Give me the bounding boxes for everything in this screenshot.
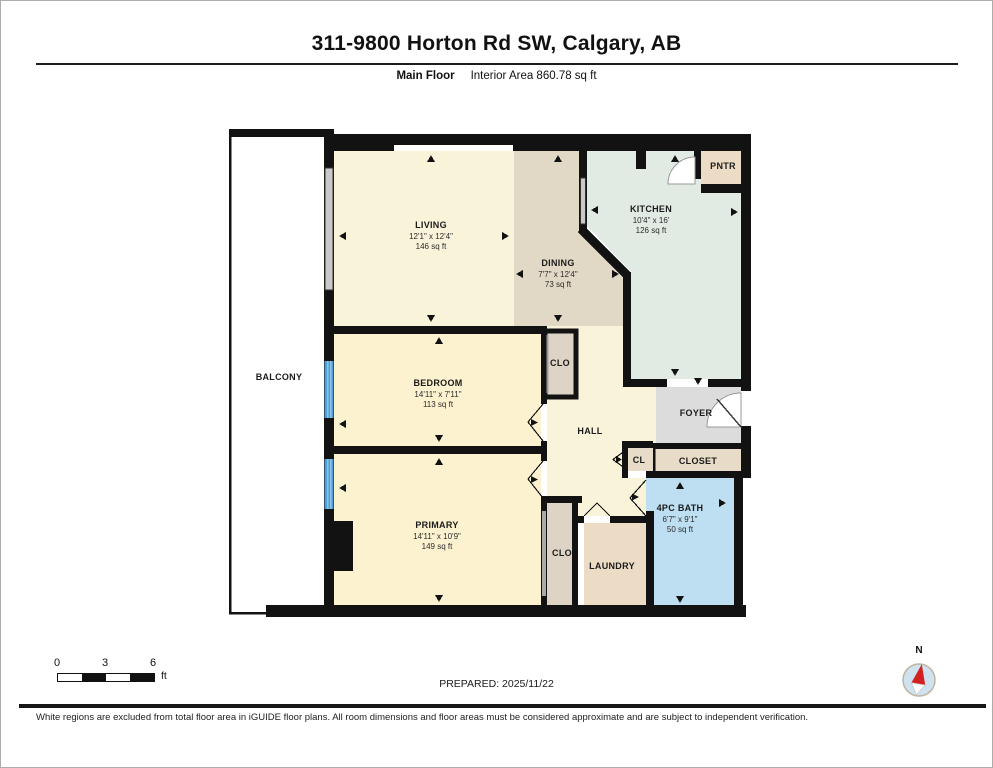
- room-label-dining: DINING: [541, 258, 574, 268]
- page-title: 311-9800 Horton Rd SW, Calgary, AB: [1, 32, 992, 56]
- living-window: [325, 168, 333, 290]
- room-label-foyer: FOYER: [680, 408, 713, 418]
- room-label-laundry: LAUNDRY: [589, 561, 635, 571]
- room-area-bath: 50 sq ft: [667, 525, 694, 534]
- room-dim-kitchen: 10'4" x 16': [633, 216, 670, 225]
- primary-closet-door: [542, 511, 546, 596]
- room-area-living: 146 sq ft: [416, 242, 447, 251]
- interior-area-label: Interior Area 860.78 sq ft: [471, 70, 597, 82]
- room-label-balcony: BALCONY: [256, 372, 303, 382]
- room-dim-dining: 7'7" x 12'4": [538, 270, 578, 279]
- room-dim-bath: 6'7" x 9'1": [663, 515, 698, 524]
- room-label-bath: 4PC BATH: [657, 503, 704, 513]
- room-dim-bedroom: 14'11" x 7'11": [414, 390, 461, 399]
- scale-tick-0: 0: [54, 657, 60, 669]
- prepared-date: PREPARED: 2025/11/22: [1, 678, 992, 690]
- room-label-hall: HALL: [577, 426, 602, 436]
- room-area-bedroom: 113 sq ft: [423, 400, 454, 409]
- room-label-bedroom-closet: CLO: [550, 358, 570, 368]
- room-label-closet: CLOSET: [679, 456, 718, 466]
- header-divider: [36, 63, 958, 65]
- room-label-primary-closet: CLO: [552, 548, 572, 558]
- scale-tick-6: 6: [150, 657, 156, 669]
- floor-plan: BALCONY LIVING 12'1" x 12'4" 146 sq ft D…: [229, 126, 756, 621]
- north-label: N: [915, 645, 922, 656]
- primary-sliding-door: [325, 459, 334, 509]
- room-label-primary: PRIMARY: [415, 520, 458, 530]
- room-label-living: LIVING: [415, 220, 447, 230]
- floorplan-page: 311-9800 Horton Rd SW, Calgary, AB Main …: [0, 0, 993, 768]
- room-label-pantry: PNTR: [710, 161, 736, 171]
- scale-tick-3: 3: [102, 657, 108, 669]
- room-label-kitchen: KITCHEN: [630, 204, 672, 214]
- bedroom-sliding-door: [325, 361, 334, 418]
- room-dim-living: 12'1" x 12'4": [409, 232, 453, 241]
- room-area-kitchen: 126 sq ft: [636, 226, 667, 235]
- room-area-dining: 73 sq ft: [545, 280, 572, 289]
- floor-label: Main Floor: [396, 70, 454, 82]
- room-label-bedroom: BEDROOM: [413, 378, 462, 388]
- room-dim-primary: 14'11" x 10'9": [413, 532, 461, 541]
- floor-subtitle: Main FloorInterior Area 860.78 sq ft: [1, 70, 992, 82]
- disclaimer-text: White regions are excluded from total fl…: [36, 712, 966, 723]
- footer-divider: [19, 704, 986, 708]
- room-area-primary: 149 sq ft: [422, 542, 453, 551]
- room-label-cl: CL: [633, 455, 646, 465]
- compass-icon: N: [896, 641, 942, 703]
- kitchen-opening: [581, 178, 586, 224]
